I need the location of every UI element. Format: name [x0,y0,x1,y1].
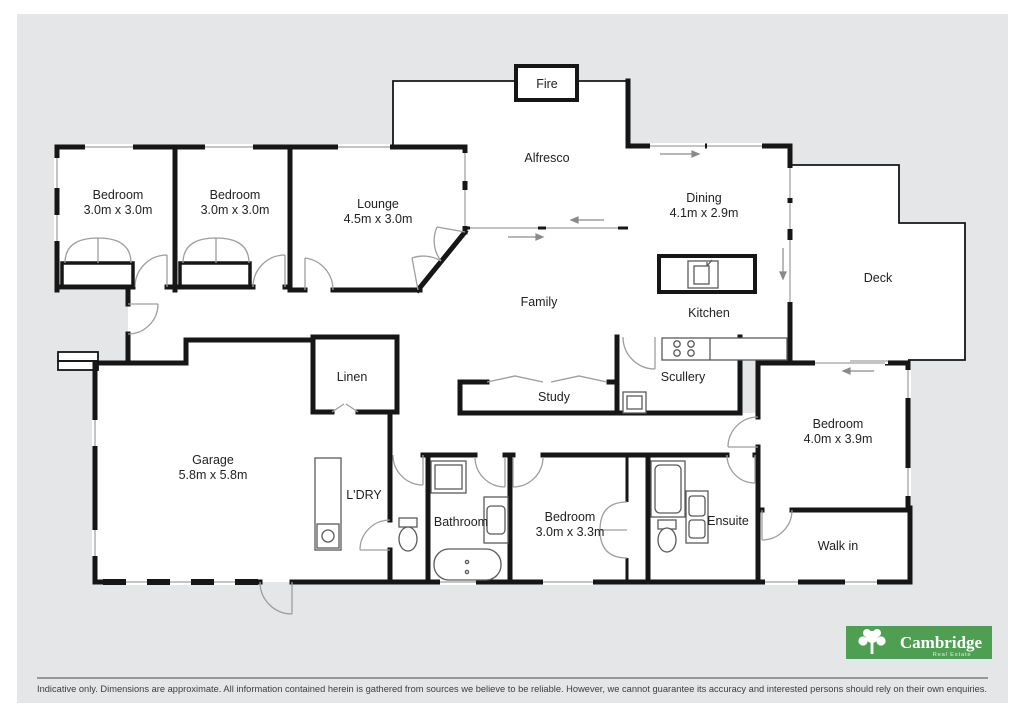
logo-name: Cambridge [900,633,983,652]
svg-text:5.8m x 5.8m: 5.8m x 5.8m [179,468,248,482]
logo-tagline: Real Estate [933,652,972,658]
toilet-ensuite [658,520,676,552]
svg-text:Scullery: Scullery [661,370,706,384]
svg-text:Fire: Fire [536,77,558,91]
svg-text:Kitchen: Kitchen [688,306,730,320]
svg-text:Walk in: Walk in [818,539,859,553]
vanity-ensuite [686,491,708,543]
svg-text:Ensuite: Ensuite [707,514,749,528]
laundry-tub [315,458,341,550]
svg-text:Linen: Linen [337,370,368,384]
svg-text:Garage: Garage [192,453,234,467]
svg-text:3.0m x 3.0m: 3.0m x 3.0m [201,203,270,217]
cooktop [662,338,787,360]
svg-text:Study: Study [538,390,571,404]
svg-text:Bedroom: Bedroom [93,188,144,202]
room-ensuite: Ensuite [707,514,749,528]
disclaimer-text: Indicative only. Dimensions are approxim… [37,684,987,695]
svg-text:Alfresco: Alfresco [524,151,569,165]
room-bedroom-front-2: Bedroom3.0m x 3.0m [201,188,270,217]
room-bedroom-front-1: Bedroom3.0m x 3.0m [84,188,153,217]
room-deck: Deck [864,271,893,285]
room-study: Study [538,390,571,404]
svg-text:Dining: Dining [686,191,721,205]
room-kitchen: Kitchen [688,306,730,320]
shower-bathroom [431,461,466,493]
agency-logo: Cambridge Real Estate [846,626,992,659]
svg-text:L'DRY: L'DRY [346,488,382,502]
room-bathroom: Bathroom [434,515,488,529]
shower-ensuite [651,461,685,517]
room-scullery: Scullery [661,370,706,384]
floorplan-svg: Bedroom3.0m x 3.0m Bedroom3.0m x 3.0m Lo… [0,0,1024,724]
fire-box-label: Fire [536,77,558,91]
svg-text:4.5m x 3.0m: 4.5m x 3.0m [344,212,413,226]
room-alfresco: Alfresco [524,151,569,165]
room-family: Family [521,295,559,309]
svg-text:Bedroom: Bedroom [210,188,261,202]
svg-text:Bedroom: Bedroom [545,510,596,524]
room-laundry: L'DRY [346,488,382,502]
bathtub [434,549,501,580]
svg-text:Lounge: Lounge [357,197,399,211]
svg-text:4.1m x 2.9m: 4.1m x 2.9m [670,206,739,220]
floorplan-page: Bedroom3.0m x 3.0m Bedroom3.0m x 3.0m Lo… [0,0,1024,724]
svg-text:Deck: Deck [864,271,893,285]
room-walk-in: Walk in [818,539,859,553]
toilet-wc [399,518,417,551]
room-bedroom-mid: Bedroom3.0m x 3.3m [536,510,605,539]
room-linen: Linen [337,370,368,384]
svg-text:3.0m x 3.0m: 3.0m x 3.0m [84,203,153,217]
scullery-sink [623,392,646,413]
svg-text:Family: Family [521,295,559,309]
svg-text:Bedroom: Bedroom [813,417,864,431]
svg-text:3.0m x 3.3m: 3.0m x 3.3m [536,525,605,539]
garage-door [103,579,258,585]
svg-text:Bathroom: Bathroom [434,515,488,529]
room-bedroom-master: Bedroom4.0m x 3.9m [804,417,873,446]
kitchen-sink [688,260,718,288]
svg-text:4.0m x 3.9m: 4.0m x 3.9m [804,432,873,446]
